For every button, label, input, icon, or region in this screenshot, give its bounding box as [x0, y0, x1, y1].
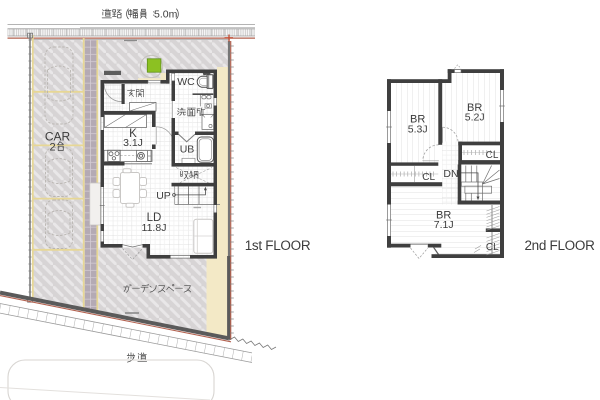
svg-text:2: 2	[49, 142, 55, 154]
svg-text:5.2J: 5.2J	[465, 112, 485, 124]
svg-text:7.1J: 7.1J	[434, 219, 454, 231]
svg-text:CL: CL	[486, 150, 499, 161]
svg-text:UB: UB	[180, 143, 195, 155]
svg-text:3.1J: 3.1J	[123, 137, 143, 149]
svg-text:CL: CL	[422, 172, 435, 183]
svg-text:5.3J: 5.3J	[408, 123, 428, 135]
svg-text:UP: UP	[156, 190, 171, 202]
svg-text:2nd FLOOR: 2nd FLOOR	[524, 238, 595, 253]
svg-text:11.8J: 11.8J	[142, 222, 167, 234]
svg-text:WC: WC	[177, 76, 195, 88]
svg-text:DN: DN	[443, 168, 458, 180]
svg-text:CL: CL	[486, 242, 499, 253]
svg-text:1st FLOOR: 1st FLOOR	[245, 238, 311, 253]
svg-text:5.0m: 5.0m	[154, 8, 178, 20]
